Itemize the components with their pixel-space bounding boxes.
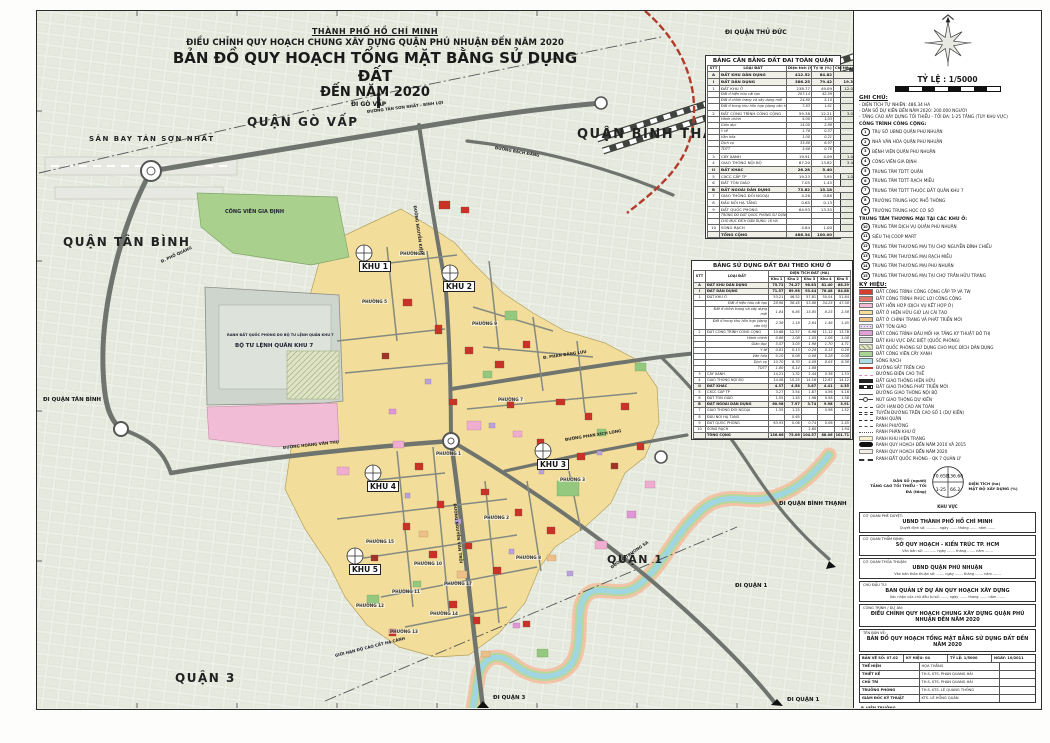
circled-number-icon: 9 [861, 206, 870, 215]
table-row: 7GIAO THÔNG ĐỐI NGOẠI4.260.88 [708, 193, 855, 200]
khu-label: KHU 4 [367, 481, 399, 492]
approval-block: CƠ QUAN THỎA THUẬN:UBND QUẬN PHÚ NHUẬNVă… [859, 558, 1036, 579]
legend-swatch-icon [859, 367, 873, 369]
circled-number-icon: 10 [861, 223, 870, 232]
legend-swatch-icon [859, 351, 873, 357]
legend-swatch-icon [859, 385, 873, 389]
circled-number-icon: 5 [861, 167, 870, 176]
ward-label: PHƯỜNG 9 [471, 321, 498, 326]
legend-item: RANH QUY HOẠCH ĐẾN NĂM 2010 VÀ 2015 [859, 442, 1036, 447]
signature-title: P. VIỆN TRƯỞNG [861, 705, 920, 708]
legend-swatch-icon [859, 459, 873, 461]
legend-swatch-icon [859, 330, 873, 336]
poi-label: BỘ TƯ LỆNH QUÂN KHU 7 [235, 343, 313, 349]
table-row: 2ĐẤT CÔNG TRÌNH CÔNG CỘNG59.3812.213.0 [708, 110, 855, 117]
column-header: Chỉ tiêu (m²/ng) [834, 66, 855, 72]
info-grid-row: THIẾT KẾTH.S. KTS. PHAN QUANG HẢI [860, 671, 1035, 679]
legend-item: NÚT GIAO THÔNG DỰ KIẾN [859, 397, 1036, 403]
ward-label: PHƯỜNG 2 [483, 515, 510, 520]
info-grid-row: GIÁM ĐỐC KỸ THUẬTKTS. LÊ HỒNG QUÂN [860, 695, 1035, 702]
table-row: 5CXCC CẤP TP19.233.951.0 [708, 173, 855, 180]
list-item: 5TRUNG TÂM TDTT QUẬN [861, 167, 1036, 176]
legend-swatch-icon [859, 289, 873, 295]
legend-swatch-icon [859, 379, 873, 383]
approval-block: CƠ QUAN PHÊ DUYỆT:UBND THÀNH PHỐ HỒ CHÍ … [859, 512, 1036, 533]
approval-block: CHỦ ĐẦU TƯ:BAN QUẢN LÝ DỰ ÁN QUY HOẠCH X… [859, 581, 1036, 602]
notes-list: - DIỆN TÍCH TỰ NHIÊN: 486.34 HA- DÂN SỐ … [859, 102, 1036, 120]
legend-item: RANH PHÂN KHU Ở [859, 429, 1036, 434]
title-block: THÀNH PHỐ HỒ CHÍ MINH ĐIỀU CHỈNH QUY HOẠ… [155, 27, 595, 100]
poi-label: RANH ĐẤT QUỐC PHÒNG DO BỘ TƯ LỆNH QUÂN K… [227, 333, 334, 337]
ward-label: PHƯỜNG 13 [389, 629, 419, 634]
list-item: 10TRUNG TÂM DỊCH VỤ QUẬN PHÚ NHUẬN [861, 223, 1036, 232]
table-row: BĐẤT NGOÀI DÂN DỤNG73.8215.18 [708, 186, 855, 193]
map-canvas: THÀNH PHỐ HỒ CHÍ MINH ĐIỀU CHỈNH QUY HOẠ… [37, 11, 855, 708]
circled-number-icon: 12 [861, 242, 870, 251]
ward-label: PHƯỜNG 3 [559, 477, 586, 482]
svg-text:70.658: 70.658 [932, 473, 948, 479]
list-item: 13TRUNG TÂM THƯƠNG MẠI RẠCH MIỄU [861, 252, 1036, 261]
notes-header: GHI CHÚ: [859, 95, 1036, 101]
legend-swatch-icon [859, 412, 873, 415]
legend-item: GIỚI HẠN ĐỘ CAO AN TOÀN [859, 404, 1036, 409]
poi-label: CÔNG VIÊN GIA ĐỊNH [225, 209, 284, 215]
table-row: Đất ở trong khu hỗn hợp (dạng căn hộ)2.3… [694, 318, 851, 329]
legend-swatch-icon [859, 358, 873, 364]
approval-blocks: CƠ QUAN PHÊ DUYỆT:UBND THÀNH PHỐ HỒ CHÍ … [859, 512, 1036, 652]
legend-swatch-icon [859, 394, 873, 395]
table-row: TỔNG CỘNG136.6675.06104.5788.06101.71 [694, 432, 851, 438]
ward-label: PHƯỜNG 14 [429, 611, 459, 616]
svg-text:136.66: 136.66 [947, 473, 963, 479]
diagram-label-density: MẬT ĐỘ XÂY DỰNG (%) [969, 486, 1031, 492]
list-item: 6TRUNG TÂM TDTT RẠCH MIỄU [861, 177, 1036, 186]
table-row: 1ĐẤT KHU Ở238.7749.0912.0 [708, 85, 855, 92]
table-row: 10SÔNG RẠCH4.841.00 [708, 224, 855, 231]
circled-number-icon: 3 [861, 147, 870, 156]
legend-item: ĐẤT CÔNG TRÌNH CÔNG CỘNG CẤP TP VÀ TW [859, 289, 1036, 295]
table-row: 8ĐẤU NỐI HẠ TẦNG0.650.13 [708, 200, 855, 207]
legend-swatch-icon [859, 303, 873, 309]
table-row: IIĐẤT KHÁC26.285.40 [708, 166, 855, 173]
ward-label: PHƯỜNG 11 [391, 589, 421, 594]
public-works-list: 1TRỤ SỞ UBND QUẬN PHÚ NHUẬN2NHÀ VĂN HÓA … [859, 128, 1036, 215]
legend-swatch-icon [859, 296, 873, 302]
legend-item: SÔNG RẠCH [859, 358, 1036, 364]
legend-swatch-icon [859, 420, 873, 421]
table-row: 4GIAO THÔNG NỘI BỘ67.2013.823.4 [708, 160, 855, 167]
direction-label: ĐI QUẬN 1 [787, 697, 819, 703]
table-row: IĐẤT DÂN DỤNG386.2579.4219.3 [708, 79, 855, 86]
legend-item: RANH QUẬN [859, 416, 1036, 421]
circled-number-icon: 6 [861, 177, 870, 186]
compass-rose-icon [859, 14, 1036, 74]
legend-item: ĐẤT GIAO THÔNG PHÁT TRIỂN MỚI [859, 384, 1036, 389]
page-title-year: ĐẾN NĂM 2020 [155, 85, 595, 100]
legend-item: RANH PHƯỜNG [859, 423, 1036, 428]
list-item: 1TRỤ SỞ UBND QUẬN PHÚ NHUẬN [861, 128, 1036, 137]
ward-label: PHƯỜNG 5 [361, 299, 388, 304]
legend-swatch-icon [859, 407, 873, 408]
legend-swatch-icon [859, 310, 873, 316]
ward-label: PHƯỜNG 15 [365, 539, 395, 544]
table-row: TỔNG CỘNG486.34100.00 [708, 231, 855, 238]
ward-label: PHƯỜNG 7 [497, 397, 524, 402]
list-item: 7TRUNG TÂM TDTT THUỘC ĐẤT QUÂN KHU 7 [861, 186, 1036, 195]
diagram-label-floors: TẦNG CAO TỐI THIỂU - TỐI ĐA (tầng) [865, 483, 927, 494]
list-item: 8TRƯỜNG TRUNG HỌC PHỔ THÔNG [861, 196, 1036, 205]
list-item: 15TRUNG TÂM THƯƠNG MẠI TẠI CHỢ TRẦN HỮU … [861, 272, 1036, 281]
table-row: 6ĐẤT TÔN GIÁO7.051.45 [708, 180, 855, 187]
table-row: 3CÂY XANH19.914.091.0 [708, 153, 855, 160]
list-item: 2NHÀ VĂN HÓA QUẬN PHÚ NHUẬN [861, 138, 1036, 147]
legend-swatch-icon [859, 442, 873, 447]
circled-number-icon: 13 [861, 252, 870, 261]
info-grid-row: TRƯỞNG PHÒNGTH.S. KTS. LÊ QUANG THỐNG [860, 687, 1035, 695]
legend-item: ĐƯỜNG GIAO THÔNG NỘI BỘ [859, 390, 1036, 395]
legend-item: ĐẤT CÔNG VIÊN CÂY XANH [859, 351, 1036, 357]
legend-swatch-icon [859, 324, 873, 330]
circled-number-icon: 11 [861, 232, 870, 241]
legend-list: ĐẤT CÔNG TRÌNH CÔNG CỘNG CẤP TP VÀ TWĐẤT… [859, 289, 1036, 461]
legend-item: RANH QUY HOẠCH ĐẾN NĂM 2020 [859, 449, 1036, 455]
title-project: ĐIỀU CHỈNH QUY HOẠCH CHUNG XÂY DỰNG QUẬN… [155, 38, 595, 48]
legend-item: ĐẤT QUỐC PHÒNG SỬ DỤNG CHO MỤC ĐÍCH DÂN … [859, 344, 1036, 350]
legend-swatch-icon [859, 426, 873, 427]
ward-label: PHƯỜNG 12 [355, 603, 385, 608]
legend-swatch-icon [859, 432, 873, 433]
legend-swatch-icon [859, 436, 873, 442]
legend-swatch-icon [859, 337, 873, 343]
info-grid-row: CHỦ TRÌTH.S. KTS. PHAN QUANG HẢI [860, 679, 1035, 687]
direction-label: ĐI QUẬN 1 [735, 583, 767, 589]
approval-block: TÊN BẢN VẼ:BẢN ĐỒ QUY HOẠCH TỔNG MẶT BẰN… [859, 629, 1036, 652]
info-grid-row: BẢN VẼ SỐ: 07.02KÝ HIỆU: 04TỶ LỆ: 1/5000… [860, 655, 1035, 663]
svg-text:66.2: 66.2 [950, 487, 960, 493]
legend-item: RANH KHU HIỆN TRẠNG [859, 436, 1036, 442]
table-land-by-khu: BẢNG SỬ DỤNG ĐẤT ĐAI THEO KHU Ở STTLOẠI … [691, 260, 853, 440]
title-city: THÀNH PHỐ HỒ CHÍ MINH [155, 27, 595, 36]
direction-label: ĐI QUẬN TÂN BÌNH [43, 397, 101, 403]
legend-item: ĐẤT HỖN HỢP (DỊCH VỤ KẾT HỢP Ở) [859, 303, 1036, 309]
legend-swatch-icon [859, 317, 873, 323]
list-item: 12TRUNG TÂM THƯƠNG MẠI TẠI CHỢ NGUYỄN ĐÌ… [861, 242, 1036, 251]
khu-diagram-circle: 70.658 136.66 1-25 66.2 [930, 464, 966, 500]
circled-number-icon: 14 [861, 262, 870, 271]
circled-number-icon: 1 [861, 128, 870, 137]
region-label: QUẬN TÂN BÌNH [63, 235, 190, 249]
table-row: IĐẤT DÂN DỤNG71.5769.9893.4476.4884.88 [694, 289, 851, 295]
legend-item: ĐẤT KHU VỰC ĐẶC BIỆT (QUỐC PHÒNG) [859, 337, 1036, 343]
diagram-label-zone: KHU VỰC [930, 504, 966, 509]
table-row: 9ĐẤT QUỐC PHÒNG64.9313.35 [708, 206, 855, 213]
circled-number-icon: 8 [861, 196, 870, 205]
table-row: BĐẤT NGOÀI DÂN DỤNG60.987.973.749.983.91 [694, 402, 851, 408]
ward-label: PHƯỜNG 17 [443, 581, 473, 586]
table-row: Đất ở chỉnh trang và xây dựng mới1.846.8… [694, 307, 851, 318]
circled-number-icon: 2 [861, 138, 870, 147]
region-label: QUẬN 3 [175, 671, 236, 685]
ward-label: PHƯỜNG 1 [435, 451, 462, 456]
public-works-header: CÔNG TRÌNH CÔNG CỘNG: [859, 122, 1036, 127]
table-land-balance: BẢNG CÂN BẰNG ĐẤT ĐAI TOÀN QUẬN STTLOẠI … [705, 55, 841, 239]
khu-label: KHU 3 [537, 459, 569, 470]
right-panel: TỶ LỆ : 1/5000 GHI CHÚ: - DIỆN TÍCH TỰ N… [853, 11, 1041, 708]
list-item: 14TRUNG TÂM THƯƠNG MẠI PHÚ NHUẬN [861, 262, 1036, 271]
svg-text:1-25: 1-25 [935, 487, 945, 493]
note-line: - TẦNG CAO XÂY DỰNG TỐI THIỂU - TỐI ĐA: … [859, 114, 1036, 120]
map-sheet: THÀNH PHỐ HỒ CHÍ MINH ĐIỀU CHỈNH QUY HOẠ… [36, 10, 1042, 710]
list-item: 9TRƯỜNG TRUNG HỌC CƠ SỞ [861, 206, 1036, 215]
direction-label: ĐI QUẬN 3 [493, 695, 525, 701]
table-row: AĐẤT KHU DÂN DỤNG75.7274.2798.8381.4088.… [694, 283, 851, 289]
khu-label: KHU 5 [349, 564, 381, 575]
list-item: 4CÔNG VIÊN GIA ĐỊNH [861, 157, 1036, 166]
legend-item: ĐẤT Ở HIỆN HỮU GIỮ LẠI CẢI TẠO [859, 310, 1036, 316]
ward-label: PHƯỜNG 10 [413, 561, 443, 566]
commerce-list: 10TRUNG TÂM DỊCH VỤ QUẬN PHÚ NHUẬN11SIÊU… [859, 223, 1036, 281]
legend-swatch-icon [859, 375, 873, 376]
legend-item: ĐẤT GIAO THÔNG HIỆN HỮU [859, 378, 1036, 383]
commerce-header: TRUNG TÂM THƯƠNG MẠI TẠI CÁC KHU Ở: [859, 217, 1036, 222]
circled-number-icon: 7 [861, 186, 870, 195]
khu-label: KHU 1 [359, 261, 391, 272]
list-item: 11SIÊU THỊ COOP MART [861, 232, 1036, 241]
legend-item: TUYẾN ĐƯỜNG TRÊN CAO SỐ 1 (DỰ KIẾN) [859, 410, 1036, 415]
legend-header: KÝ HIỆU: [859, 282, 1036, 288]
direction-label: ĐI QUẬN THỦ ĐỨC [725, 29, 787, 36]
approval-block: CƠ QUAN THẨM ĐỊNH:SỞ QUY HOẠCH - KIẾN TR… [859, 535, 1036, 556]
signature-block: P. VIỆN TRƯỞNG TS. KTS. PHAN SỸ CHÂU [861, 705, 1034, 708]
column-header: LOẠI ĐẤT [706, 271, 769, 283]
circled-number-icon: 4 [861, 157, 870, 166]
ward-label: PHƯỜNG 8 [515, 555, 542, 560]
table-title: BẢNG CÂN BẰNG ĐẤT ĐAI TOÀN QUẬN [707, 57, 839, 65]
circled-number-icon: 15 [861, 272, 870, 281]
page-title: BẢN ĐỒ QUY HOẠCH TỔNG MẶT BẰNG SỬ DỤNG Đ… [155, 49, 595, 85]
table-title: BẢNG SỬ DỤNG ĐẤT ĐAI THEO KHU Ở [693, 262, 851, 270]
legend-swatch-icon [859, 344, 873, 350]
region-label: SÂN BAY TÂN SƠN NHẤT [89, 135, 215, 143]
legend-swatch-icon [859, 449, 873, 455]
column-header: Diện tích (ha) [787, 66, 812, 72]
column-header: STT [694, 271, 706, 283]
legend-item: RANH ĐẤT QUỐC PHÒNG - QK 7 QUẢN LÝ [859, 456, 1036, 461]
khu-diagram: DÂN SỐ (người) TẦNG CAO TỐI THIỂU - TỐI … [859, 464, 1036, 509]
legend-item: ĐẤT CÔNG TRÌNH PHÚC LỢI CÔNG CỘNG [859, 296, 1036, 302]
legend-item: ĐẤT CÔNG TRÌNH ĐẦU MỐI HẠ TẦNG KỸ THUẬT … [859, 330, 1036, 336]
khu-label: KHU 2 [443, 281, 475, 292]
column-header: Tỷ lệ (%) [812, 66, 834, 72]
legend-item: ĐẤT TÔN GIÁO [859, 324, 1036, 330]
legend-item: ĐƯỜNG SẮT TRÊN CAO [859, 365, 1036, 370]
scale-label: TỶ LỆ : 1/5000 [859, 75, 1036, 84]
scale-bar [895, 86, 1001, 92]
drawing-info-grid: BẢN VẼ SỐ: 07.02KÝ HIỆU: 04TỶ LỆ: 1/5000… [859, 654, 1036, 703]
list-item: 3BỆNH VIỆN QUẬN PHÚ NHUẬN [861, 147, 1036, 156]
legend-item: ĐƯỜNG ĐIỆN CAO THẾ [859, 371, 1036, 376]
table-row: AĐẤT KHU DÂN DỤNG412.5284.82 [708, 72, 855, 79]
legend-swatch-icon [859, 397, 873, 403]
info-grid-row: THỂ HIỆNHỌA THẮNG [860, 663, 1035, 671]
legend-item: ĐẤT Ở CHỈNH TRANG VÀ PHÁT TRIỂN MỚI [859, 317, 1036, 323]
region-label: QUẬN GÒ VẤP [247, 115, 359, 129]
approval-block: CÔNG TRÌNH / DỰ ÁN:ĐIỀU CHỈNH QUY HOẠCH … [859, 604, 1036, 627]
direction-label: ĐI QUẬN BÌNH THẠNH [779, 501, 847, 507]
